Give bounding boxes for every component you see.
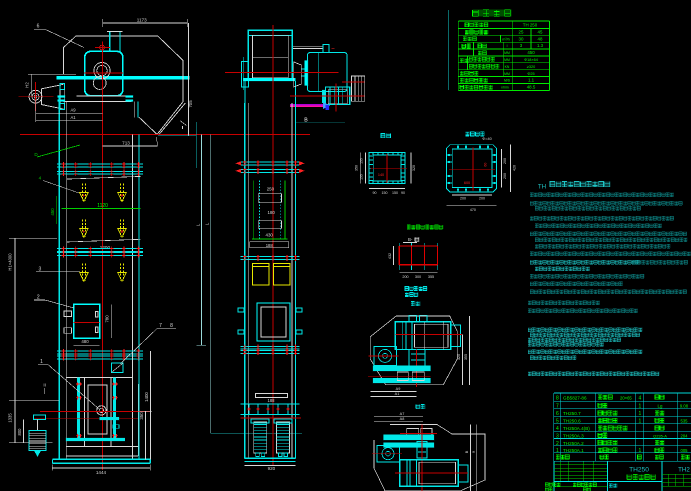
svg-text:Φ18×64: Φ18×64 (524, 58, 538, 62)
svg-text:355: 355 (464, 354, 468, 360)
svg-text:800: 800 (17, 428, 22, 436)
svg-text:200: 200 (503, 173, 507, 179)
svg-text:350: 350 (355, 165, 359, 171)
svg-text:1.3: 1.3 (537, 43, 544, 48)
svg-text:L: L (205, 222, 210, 225)
svg-text:B: B (464, 450, 469, 453)
svg-text:TH: TH (538, 184, 546, 191)
svg-text:TH250A.3: TH250A.3 (563, 433, 584, 438)
svg-text:TH2: TH2 (678, 467, 690, 474)
svg-text:920: 920 (268, 466, 276, 471)
svg-text:1: 1 (639, 411, 642, 417)
svg-text:TH250.6: TH250.6 (563, 419, 581, 424)
svg-text:200: 200 (402, 275, 408, 279)
svg-text:300: 300 (415, 275, 421, 279)
svg-text:A9: A9 (396, 387, 401, 391)
svg-text:TH250: TH250 (629, 467, 649, 474)
svg-text:204: 204 (681, 433, 689, 438)
svg-text:20×65: 20×65 (620, 395, 632, 400)
svg-text:9.08: 9.08 (680, 404, 689, 409)
svg-text:780: 780 (105, 315, 110, 323)
svg-text:155: 155 (359, 174, 363, 180)
svg-text:7: 7 (159, 323, 162, 329)
svg-text:1173: 1173 (137, 18, 147, 23)
svg-text:Φ=40: Φ=40 (482, 137, 491, 141)
svg-text:B-: B- (408, 237, 413, 242)
svg-text:4: 4 (639, 395, 642, 401)
svg-text:1: 1 (40, 359, 43, 365)
svg-text:8: 8 (556, 395, 559, 401)
svg-text:4: 4 (39, 176, 42, 181)
svg-text:r/min: r/min (501, 86, 509, 90)
svg-text:1335: 1335 (8, 413, 13, 423)
svg-text:3: 3 (39, 266, 42, 272)
svg-text:MM: MM (504, 58, 510, 62)
svg-text:355: 355 (428, 275, 434, 279)
svg-text:200: 200 (503, 158, 507, 164)
svg-text:250: 250 (267, 187, 275, 192)
svg-text:II: II (43, 383, 46, 388)
svg-text:90: 90 (401, 191, 405, 195)
svg-text:350: 350 (139, 412, 144, 420)
svg-text:1: 1 (639, 419, 642, 425)
svg-text:320: 320 (457, 354, 461, 360)
svg-text:TH250A.2: TH250A.2 (563, 441, 584, 446)
svg-text:188: 188 (268, 398, 276, 403)
svg-text:25: 25 (519, 29, 524, 34)
svg-text:TH250.7: TH250.7 (563, 411, 581, 416)
svg-text:4: 4 (556, 426, 559, 432)
svg-text:1200: 1200 (100, 245, 111, 250)
svg-text:3: 3 (556, 433, 559, 439)
svg-text:M/S: M/S (504, 79, 511, 83)
svg-text:1.1: 1.1 (528, 78, 535, 83)
svg-text:140: 140 (378, 173, 384, 177)
svg-text:320: 320 (412, 165, 416, 171)
svg-text:8: 8 (170, 323, 173, 329)
svg-text:A7: A7 (400, 412, 405, 416)
svg-text:≥320: ≥320 (527, 65, 535, 69)
svg-text:150: 150 (382, 191, 388, 195)
svg-text:470: 470 (470, 208, 476, 212)
svg-text:480: 480 (81, 339, 89, 344)
svg-text:Q235-A: Q235-A (653, 433, 667, 438)
svg-text:TH250A.1: TH250A.1 (563, 448, 584, 453)
svg-text:5: 5 (556, 419, 559, 425)
svg-text:H2: H2 (25, 82, 30, 88)
svg-text:Lg: Lg (658, 404, 663, 409)
svg-text:H1=4000: H1=4000 (8, 253, 13, 271)
svg-text:30: 30 (519, 36, 524, 41)
svg-text:MM: MM (504, 51, 510, 55)
svg-text:450: 450 (50, 208, 55, 216)
svg-text:L: L (195, 223, 200, 226)
svg-text:TH 250: TH 250 (523, 23, 538, 28)
svg-text:Φ25: Φ25 (527, 72, 534, 76)
svg-text:GB5827-86: GB5827-86 (563, 395, 587, 400)
svg-text:MM: MM (504, 72, 510, 76)
svg-text:2: 2 (556, 441, 559, 447)
svg-text:2: 2 (37, 295, 40, 301)
svg-text:1444: 1444 (96, 470, 107, 475)
svg-text:A9: A9 (70, 108, 76, 113)
svg-text:200: 200 (460, 197, 466, 201)
svg-text:60: 60 (484, 163, 488, 167)
svg-text:1: 1 (556, 448, 559, 454)
svg-text:155: 155 (359, 158, 363, 164)
svg-text:600: 600 (464, 181, 470, 185)
svg-text:6: 6 (37, 24, 40, 30)
svg-text:005: 005 (681, 448, 689, 453)
svg-text:432: 432 (388, 253, 392, 259)
svg-text:150: 150 (392, 191, 398, 195)
svg-text:535: 535 (681, 419, 689, 424)
svg-text:180: 180 (268, 210, 276, 215)
svg-text:6: 6 (556, 411, 559, 417)
svg-text:7: 7 (556, 404, 559, 410)
svg-text:705: 705 (188, 100, 193, 108)
svg-text:200: 200 (479, 197, 485, 201)
svg-text:90: 90 (373, 191, 377, 195)
svg-text:45: 45 (538, 29, 543, 34)
svg-text:A8: A8 (400, 417, 405, 421)
svg-text:48: 48 (538, 36, 543, 41)
svg-text:1: 1 (639, 448, 642, 454)
svg-text:48.5: 48.5 (527, 85, 536, 90)
svg-text:1400: 1400 (144, 392, 149, 402)
svg-text:420: 420 (512, 165, 516, 171)
svg-text:1: 1 (639, 404, 642, 410)
svg-text:A1: A1 (395, 392, 400, 396)
svg-text:m³/h: m³/h (502, 37, 510, 41)
svg-text:TH250A.4(B): TH250A.4(B) (563, 426, 590, 431)
svg-text:188: 188 (266, 243, 274, 248)
svg-text:450: 450 (527, 50, 535, 55)
svg-text:KN: KN (505, 65, 510, 69)
svg-text:430: 430 (266, 233, 274, 238)
svg-text:A1: A1 (70, 115, 76, 120)
svg-text:713: 713 (122, 141, 130, 146)
svg-text:1120: 1120 (97, 203, 108, 209)
